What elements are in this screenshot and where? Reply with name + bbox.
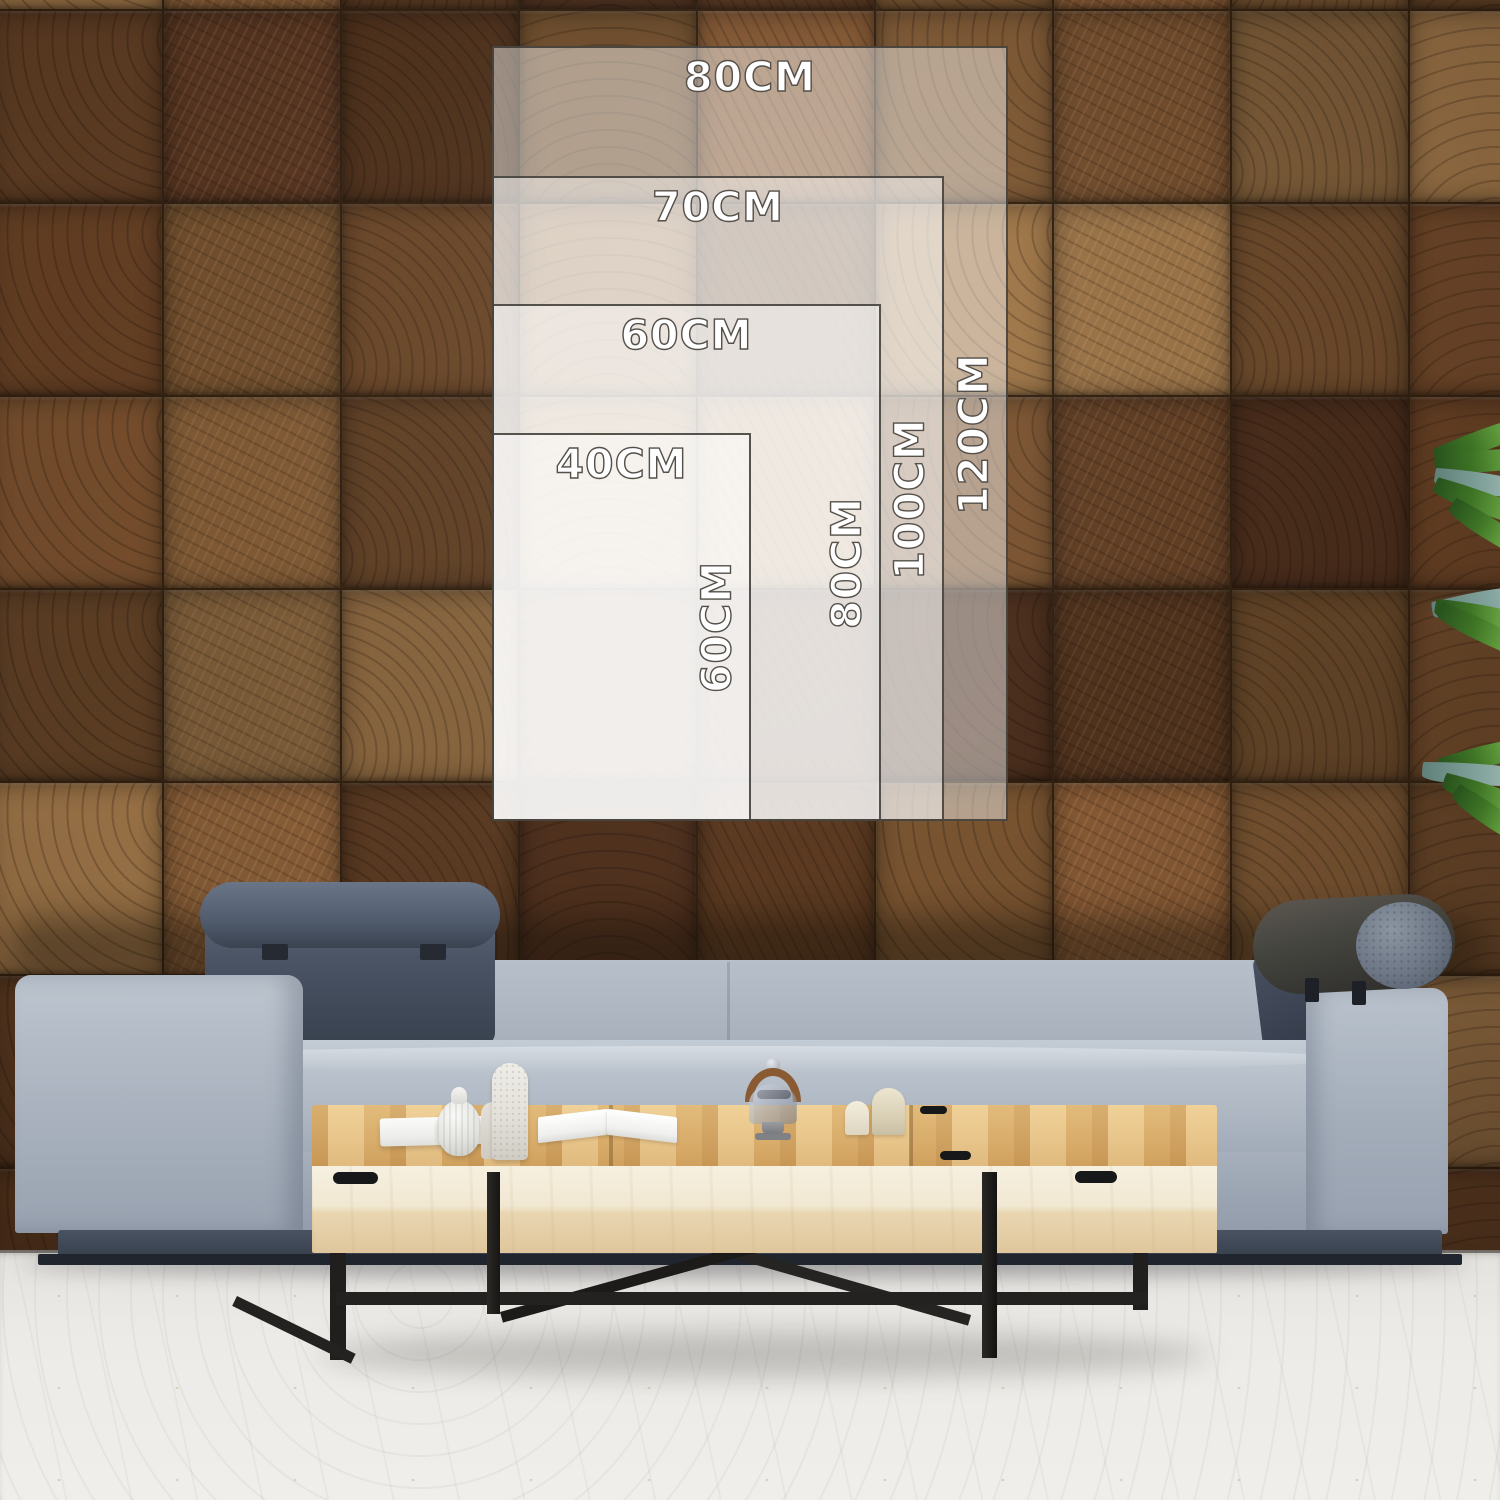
cream-candle-small xyxy=(845,1101,869,1135)
open-book-left-page xyxy=(538,1109,608,1144)
cream-candle-large xyxy=(872,1088,905,1135)
open-book-right-page xyxy=(607,1109,677,1144)
glass-cloche xyxy=(742,1058,804,1142)
ribbed-gourd-vase xyxy=(437,1100,481,1156)
cloche-glass-dome xyxy=(749,1084,797,1124)
cloche-base xyxy=(755,1133,791,1140)
open-book xyxy=(538,1108,678,1142)
tall-stone-vase xyxy=(492,1063,528,1160)
table-decor xyxy=(0,0,1500,1500)
size-guide-mockup-scene: 80CM 120CM 70CM 100CM 60CM 80CM 40CM 60C… xyxy=(0,0,1500,1500)
